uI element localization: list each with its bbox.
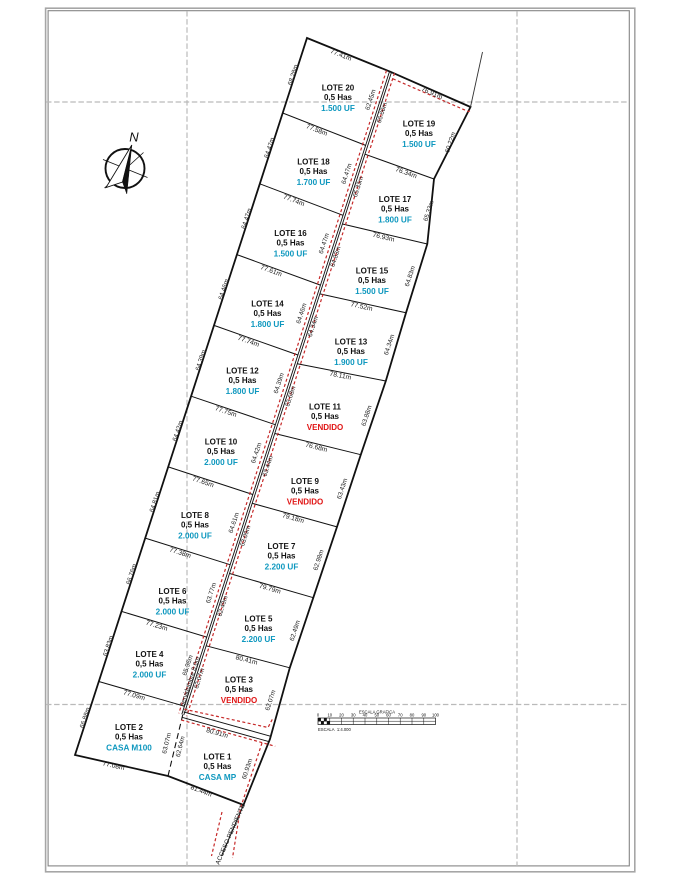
svg-text:LOTE 6: LOTE 6 xyxy=(158,587,187,596)
svg-text:LOTE 1: LOTE 1 xyxy=(203,753,232,762)
svg-text:1.900 UF: 1.900 UF xyxy=(334,358,368,367)
svg-text:LOTE 12: LOTE 12 xyxy=(226,367,259,376)
svg-text:LOTE 13: LOTE 13 xyxy=(335,338,368,347)
svg-text:0,5 Has: 0,5 Has xyxy=(228,376,257,385)
svg-text:1.800 UF: 1.800 UF xyxy=(251,320,285,329)
svg-text:2.000 UF: 2.000 UF xyxy=(204,458,238,467)
svg-text:VENDIDO: VENDIDO xyxy=(221,696,257,705)
svg-text:LOTE 18: LOTE 18 xyxy=(297,158,330,167)
svg-text:0,5 Has: 0,5 Has xyxy=(324,93,353,102)
svg-text:LOTE 7: LOTE 7 xyxy=(267,542,296,551)
svg-text:80: 80 xyxy=(410,713,415,718)
svg-text:0,5 Has: 0,5 Has xyxy=(311,412,340,421)
svg-text:CASA M100: CASA M100 xyxy=(106,744,152,753)
svg-text:ESCALA 1:4.000: ESCALA 1:4.000 xyxy=(318,727,351,732)
svg-text:10: 10 xyxy=(327,713,332,718)
svg-text:LOTE 14: LOTE 14 xyxy=(251,300,284,309)
svg-text:0,5 Has: 0,5 Has xyxy=(299,167,328,176)
svg-text:2.200 UF: 2.200 UF xyxy=(242,635,276,644)
svg-text:1.800 UF: 1.800 UF xyxy=(378,216,412,225)
svg-text:0,5 Has: 0,5 Has xyxy=(358,276,387,285)
svg-text:LOTE 15: LOTE 15 xyxy=(356,267,389,276)
svg-text:LOTE 4: LOTE 4 xyxy=(135,650,164,659)
svg-text:0,5 Has: 0,5 Has xyxy=(337,347,366,356)
svg-text:30: 30 xyxy=(351,713,356,718)
svg-text:2.000 UF: 2.000 UF xyxy=(156,608,190,617)
svg-text:50: 50 xyxy=(374,713,379,718)
svg-text:0,5 Has: 0,5 Has xyxy=(244,624,273,633)
svg-text:LOTE 20: LOTE 20 xyxy=(322,84,355,93)
svg-text:LOTE 17: LOTE 17 xyxy=(379,195,412,204)
svg-text:0,5 Has: 0,5 Has xyxy=(291,487,320,496)
svg-text:1.700 UF: 1.700 UF xyxy=(297,178,331,187)
svg-text:20: 20 xyxy=(339,713,344,718)
svg-text:1.500 UF: 1.500 UF xyxy=(402,140,436,149)
svg-text:N: N xyxy=(129,130,139,145)
svg-text:2.000 UF: 2.000 UF xyxy=(133,671,167,680)
svg-text:0,5 Has: 0,5 Has xyxy=(181,521,210,530)
svg-text:2.000 UF: 2.000 UF xyxy=(178,532,212,541)
svg-text:0,5 Has: 0,5 Has xyxy=(115,733,144,742)
svg-text:0,5 Has: 0,5 Has xyxy=(381,205,410,214)
svg-text:LOTE 3: LOTE 3 xyxy=(225,676,254,685)
svg-text:2.200 UF: 2.200 UF xyxy=(265,563,299,572)
svg-text:60: 60 xyxy=(386,713,391,718)
svg-text:LOTE 9: LOTE 9 xyxy=(291,477,320,486)
svg-text:LOTE 8: LOTE 8 xyxy=(181,511,210,520)
svg-text:0,5 Has: 0,5 Has xyxy=(207,447,236,456)
svg-text:40: 40 xyxy=(363,713,368,718)
svg-text:VENDIDO: VENDIDO xyxy=(287,498,323,507)
svg-text:LOTE 2: LOTE 2 xyxy=(115,723,144,732)
svg-text:LOTE 16: LOTE 16 xyxy=(274,229,307,238)
svg-text:0,5 Has: 0,5 Has xyxy=(276,239,305,248)
svg-text:70: 70 xyxy=(398,713,403,718)
svg-text:0,5 Has: 0,5 Has xyxy=(158,597,187,606)
svg-text:LOTE 10: LOTE 10 xyxy=(205,438,238,447)
svg-text:LOTE 19: LOTE 19 xyxy=(403,120,436,129)
svg-text:LOTE 5: LOTE 5 xyxy=(244,615,273,624)
svg-text:0,5 Has: 0,5 Has xyxy=(135,660,164,669)
svg-text:0,5 Has: 0,5 Has xyxy=(253,309,282,318)
svg-text:0,5 Has: 0,5 Has xyxy=(225,685,254,694)
svg-text:100: 100 xyxy=(432,713,440,718)
svg-text:1.500 UF: 1.500 UF xyxy=(355,287,389,296)
svg-text:LOTE 11: LOTE 11 xyxy=(309,403,342,412)
svg-text:0,5 Has: 0,5 Has xyxy=(203,762,232,771)
svg-text:0,5 Has: 0,5 Has xyxy=(267,552,296,561)
svg-text:VENDIDO: VENDIDO xyxy=(307,423,343,432)
svg-text:90: 90 xyxy=(421,713,426,718)
svg-text:CASA MP: CASA MP xyxy=(199,773,237,782)
svg-text:1.800 UF: 1.800 UF xyxy=(226,387,260,396)
svg-text:0,5 Has: 0,5 Has xyxy=(405,129,434,138)
svg-text:1.500 UF: 1.500 UF xyxy=(321,104,355,113)
svg-text:1.500 UF: 1.500 UF xyxy=(274,250,308,259)
